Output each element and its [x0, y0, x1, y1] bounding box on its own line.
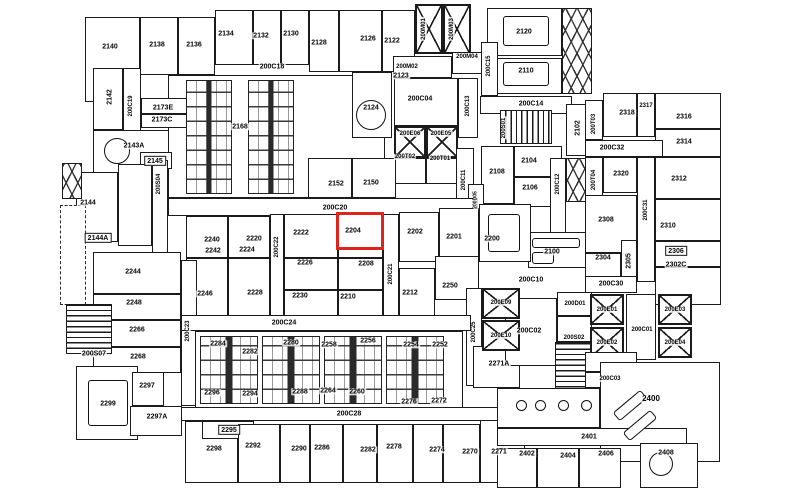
elevator-200M03 [443, 4, 471, 54]
room-2316 [655, 93, 721, 129]
floor-plan: 214021382136213421322130212821262122200M… [0, 0, 800, 501]
room-label-2304: 2304 [594, 254, 612, 261]
room-label-2306: 2306 [665, 246, 687, 256]
room-label-2173C: 2173C [151, 116, 174, 123]
room-label-2138: 2138 [148, 41, 166, 48]
room-label-200S04: 200S04 [156, 173, 162, 196]
chair [558, 400, 569, 411]
sofa [532, 238, 580, 248]
room-label-200C13: 200C13 [465, 94, 471, 117]
room-label-2122: 2122 [383, 37, 401, 44]
room-label-2152: 2152 [327, 180, 345, 187]
corridor-200C24 [181, 315, 471, 331]
room-2312 [655, 157, 721, 199]
room-label-2406: 2406 [597, 450, 615, 457]
chair [535, 400, 546, 411]
room-label-200C18: 200C18 [259, 63, 286, 70]
room-label-2308: 2308 [597, 216, 615, 223]
room-label-2280: 2280 [282, 339, 300, 346]
room-label-200C25: 200C25 [471, 320, 477, 343]
room-label-2270: 2270 [461, 448, 479, 455]
room-label-200C12: 200C12 [555, 172, 561, 195]
room-label-200E04: 200E04 [664, 340, 687, 346]
room-label-200C03: 200C03 [598, 376, 621, 382]
room-label-2142: 2142 [106, 88, 113, 106]
room-label-2250: 2250 [441, 282, 459, 289]
room-label-200E05: 200E05 [430, 131, 453, 137]
room-label-200C20: 200C20 [322, 204, 349, 211]
room-200T02 [394, 158, 426, 184]
room-label-200M03: 200M03 [449, 17, 455, 41]
room-label-2278: 2278 [385, 443, 403, 450]
room-label-200T04: 200T04 [591, 169, 597, 191]
room-label-200C32: 200C32 [599, 144, 626, 151]
corridor-200C12 [550, 158, 566, 236]
room-label-2246: 2246 [196, 290, 214, 297]
room-label-2248: 2248 [125, 299, 143, 306]
room-label-2244: 2244 [124, 268, 142, 275]
room-label-2224: 2224 [238, 246, 256, 253]
room-label-2132: 2132 [252, 32, 270, 39]
room-label-200C10: 200C10 [518, 276, 545, 283]
room-label-2124: 2124 [362, 104, 380, 111]
room-label-2290: 2290 [290, 445, 308, 452]
room-label-2282: 2282 [241, 348, 259, 355]
room-label-2143A: 2143A [123, 142, 146, 149]
room-label-2402: 2402 [518, 450, 536, 457]
room-label-200E01: 200E01 [596, 307, 619, 313]
room-2317 [637, 93, 655, 137]
room-label-2136: 2136 [185, 41, 203, 48]
room-label-2144A: 2144A [85, 233, 112, 243]
corridor-200C22 [270, 214, 284, 320]
stair-200S07 [66, 304, 112, 354]
elevator-200M01 [415, 4, 443, 54]
room-label-2123: 2123 [392, 72, 410, 79]
room-label-200C15: 200C15 [486, 54, 492, 77]
room-label-2286: 2286 [313, 444, 331, 451]
room-label-200C01: 200C01 [630, 327, 653, 333]
room-label-2268: 2268 [129, 353, 147, 360]
room-label-2284: 2284 [209, 340, 227, 347]
room-label-2316: 2316 [675, 113, 693, 120]
room-label-2173E: 2173E [152, 104, 174, 111]
room-label-2296: 2296 [203, 389, 221, 396]
room-label-2110: 2110 [517, 67, 534, 74]
highlight-box-2204 [336, 212, 384, 250]
room-label-2140: 2140 [101, 43, 119, 50]
room-2290 [280, 424, 310, 483]
room-label-200S02: 200S02 [563, 335, 586, 341]
room-label-2104: 2104 [520, 157, 538, 164]
room-label-2240: 2240 [203, 236, 221, 243]
room-label-2100: 2100 [543, 248, 561, 255]
room-label-2312: 2312 [670, 175, 688, 182]
room-2310 [655, 199, 721, 241]
room-label-200C02: 200C02 [516, 327, 543, 334]
room-2292 [238, 424, 280, 483]
room-label-200M01: 200M01 [421, 17, 427, 41]
room-label-2145: 2145 [144, 156, 166, 166]
room-label-200D05: 200D05 [473, 190, 478, 210]
room-label-2108: 2108 [488, 168, 506, 175]
room-label-2226: 2226 [296, 259, 314, 266]
room-label-200C30: 200C30 [598, 280, 625, 287]
room-label-2271: 2271 [490, 448, 508, 455]
room-label-2295: 2295 [218, 425, 240, 435]
room-label-2120: 2120 [515, 28, 533, 35]
room-label-2106: 2106 [521, 184, 539, 191]
room-label-200T01: 200T01 [429, 156, 451, 162]
room-label-2294: 2294 [241, 390, 259, 397]
room-label-200C22: 200C22 [274, 235, 280, 258]
room-label-200T03: 200T03 [591, 113, 597, 135]
room-label-2317: 2317 [638, 103, 653, 109]
room-label-200M02: 200M02 [395, 64, 419, 70]
room-label-2242: 2242 [204, 247, 222, 254]
room-label-2222: 2222 [292, 229, 310, 236]
room-label-200E03: 200E03 [664, 307, 687, 313]
room-label-2254: 2254 [402, 341, 420, 348]
chair [581, 400, 592, 411]
room-label-2274: 2274 [428, 446, 446, 453]
room-label-200E09: 200E09 [490, 300, 513, 306]
room-2286 [310, 424, 343, 483]
room-label-200E02: 200E02 [596, 340, 619, 346]
room-label-200C11: 200C11 [461, 169, 467, 192]
room-label-2144: 2144 [79, 199, 97, 206]
stair-200S01 [500, 110, 552, 144]
room-label-2271A: 2271A [488, 360, 511, 367]
room-label-2305: 2305 [625, 252, 632, 270]
room-label-200E10: 200E10 [490, 333, 513, 339]
room-label-200C23: 200C23 [185, 319, 191, 342]
room-label-200C28: 200C28 [336, 410, 363, 417]
room-label-2282-b: 2282 [359, 446, 377, 453]
shaft [62, 163, 82, 199]
room-label-200S01: 200S01 [501, 117, 507, 140]
room-label-2320: 2320 [612, 170, 630, 177]
room-label-2256: 2256 [359, 337, 377, 344]
room-label-2299: 2299 [99, 400, 117, 407]
room-label-2297: 2297 [138, 382, 156, 389]
room-label-2208: 2208 [357, 260, 375, 267]
room-label-200D01: 200D01 [563, 301, 586, 307]
room-label-2264: 2264 [319, 387, 337, 394]
room-label-2288: 2288 [291, 388, 309, 395]
room-label-200T02: 200T02 [394, 154, 416, 160]
room-2278 [377, 424, 413, 483]
room-label-200M04: 200M04 [455, 54, 479, 60]
room-label-200C14: 200C14 [518, 100, 545, 107]
room-label-2404: 2404 [559, 452, 577, 459]
room-label-2302C: 2302C [665, 261, 688, 268]
room-label-2128: 2128 [310, 39, 328, 46]
service-chase [60, 205, 86, 305]
room-label-200C19: 200C19 [128, 94, 134, 117]
room-label-2202: 2202 [406, 228, 424, 235]
room-label-2130: 2130 [282, 30, 300, 37]
shaft [562, 8, 592, 94]
room-2297A [130, 406, 182, 436]
room-label-2220: 2220 [245, 235, 263, 242]
room-label-200C04: 200C04 [407, 95, 434, 102]
room-label-2210: 2210 [339, 293, 357, 300]
room-label-2260: 2260 [348, 388, 366, 395]
room-label-2292: 2292 [244, 442, 262, 449]
room-label-2258: 2258 [320, 341, 338, 348]
room-label-2201: 2201 [445, 233, 463, 240]
room-label-2230: 2230 [291, 292, 309, 299]
room-2202 [399, 212, 439, 262]
room-label-2134: 2134 [217, 30, 235, 37]
room-label-2272: 2272 [430, 397, 448, 404]
room-2144A [118, 164, 152, 246]
room-label-200C31: 200C31 [643, 198, 649, 221]
room-label-200C21: 200C21 [388, 262, 394, 285]
room-label-2266: 2266 [128, 326, 146, 333]
room-label-2310: 2310 [659, 222, 677, 229]
room-2150 [352, 158, 396, 198]
room-label-200S07: 200S07 [81, 350, 107, 357]
room-label-2200: 2200 [483, 235, 501, 242]
room-label-2126: 2126 [359, 35, 377, 42]
room-label-2212: 2212 [401, 289, 419, 296]
cubicle-bank [248, 80, 294, 194]
room-label-2102: 2102 [574, 119, 581, 137]
room-label-2276: 2276 [400, 398, 418, 405]
room-label-2318: 2318 [618, 109, 636, 116]
room-label-2297A: 2297A [146, 413, 169, 420]
room-label-200E06: 200E06 [399, 131, 422, 137]
room-label-2228: 2228 [246, 289, 264, 296]
room-label-200C24: 200C24 [271, 319, 298, 326]
conference-table [488, 214, 520, 252]
room-label-2401: 2401 [580, 433, 598, 440]
cubicle-bank [186, 80, 232, 194]
room-label-2408: 2408 [657, 449, 675, 456]
room-label-2252: 2252 [431, 341, 449, 348]
room-label-2298: 2298 [205, 445, 223, 452]
room-label-2168: 2168 [231, 123, 249, 130]
room-label-2314: 2314 [675, 138, 693, 145]
room-label-2150: 2150 [362, 179, 380, 186]
room-2152 [308, 158, 352, 198]
chair [516, 400, 527, 411]
room-label-2400: 2400 [641, 395, 661, 403]
